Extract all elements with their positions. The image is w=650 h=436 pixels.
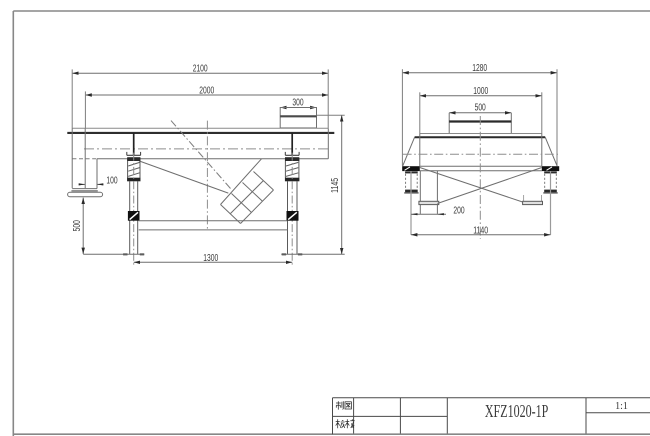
- svg-text:500: 500: [72, 220, 83, 232]
- svg-text:500: 500: [475, 103, 487, 114]
- svg-text:XFZ1020-1P: XFZ1020-1P: [485, 401, 549, 421]
- svg-text:1:1: 1:1: [615, 401, 628, 412]
- svg-text:200: 200: [453, 206, 465, 217]
- svg-text:300: 300: [292, 98, 304, 109]
- svg-text:1280: 1280: [472, 63, 487, 74]
- svg-text:1140: 1140: [473, 226, 488, 237]
- svg-text:2100: 2100: [193, 64, 208, 75]
- svg-text:2000: 2000: [199, 85, 214, 96]
- svg-text:100: 100: [106, 175, 118, 186]
- svg-text:1300: 1300: [203, 253, 218, 264]
- svg-text:1000: 1000: [473, 86, 488, 97]
- svg-text:1145: 1145: [330, 178, 341, 193]
